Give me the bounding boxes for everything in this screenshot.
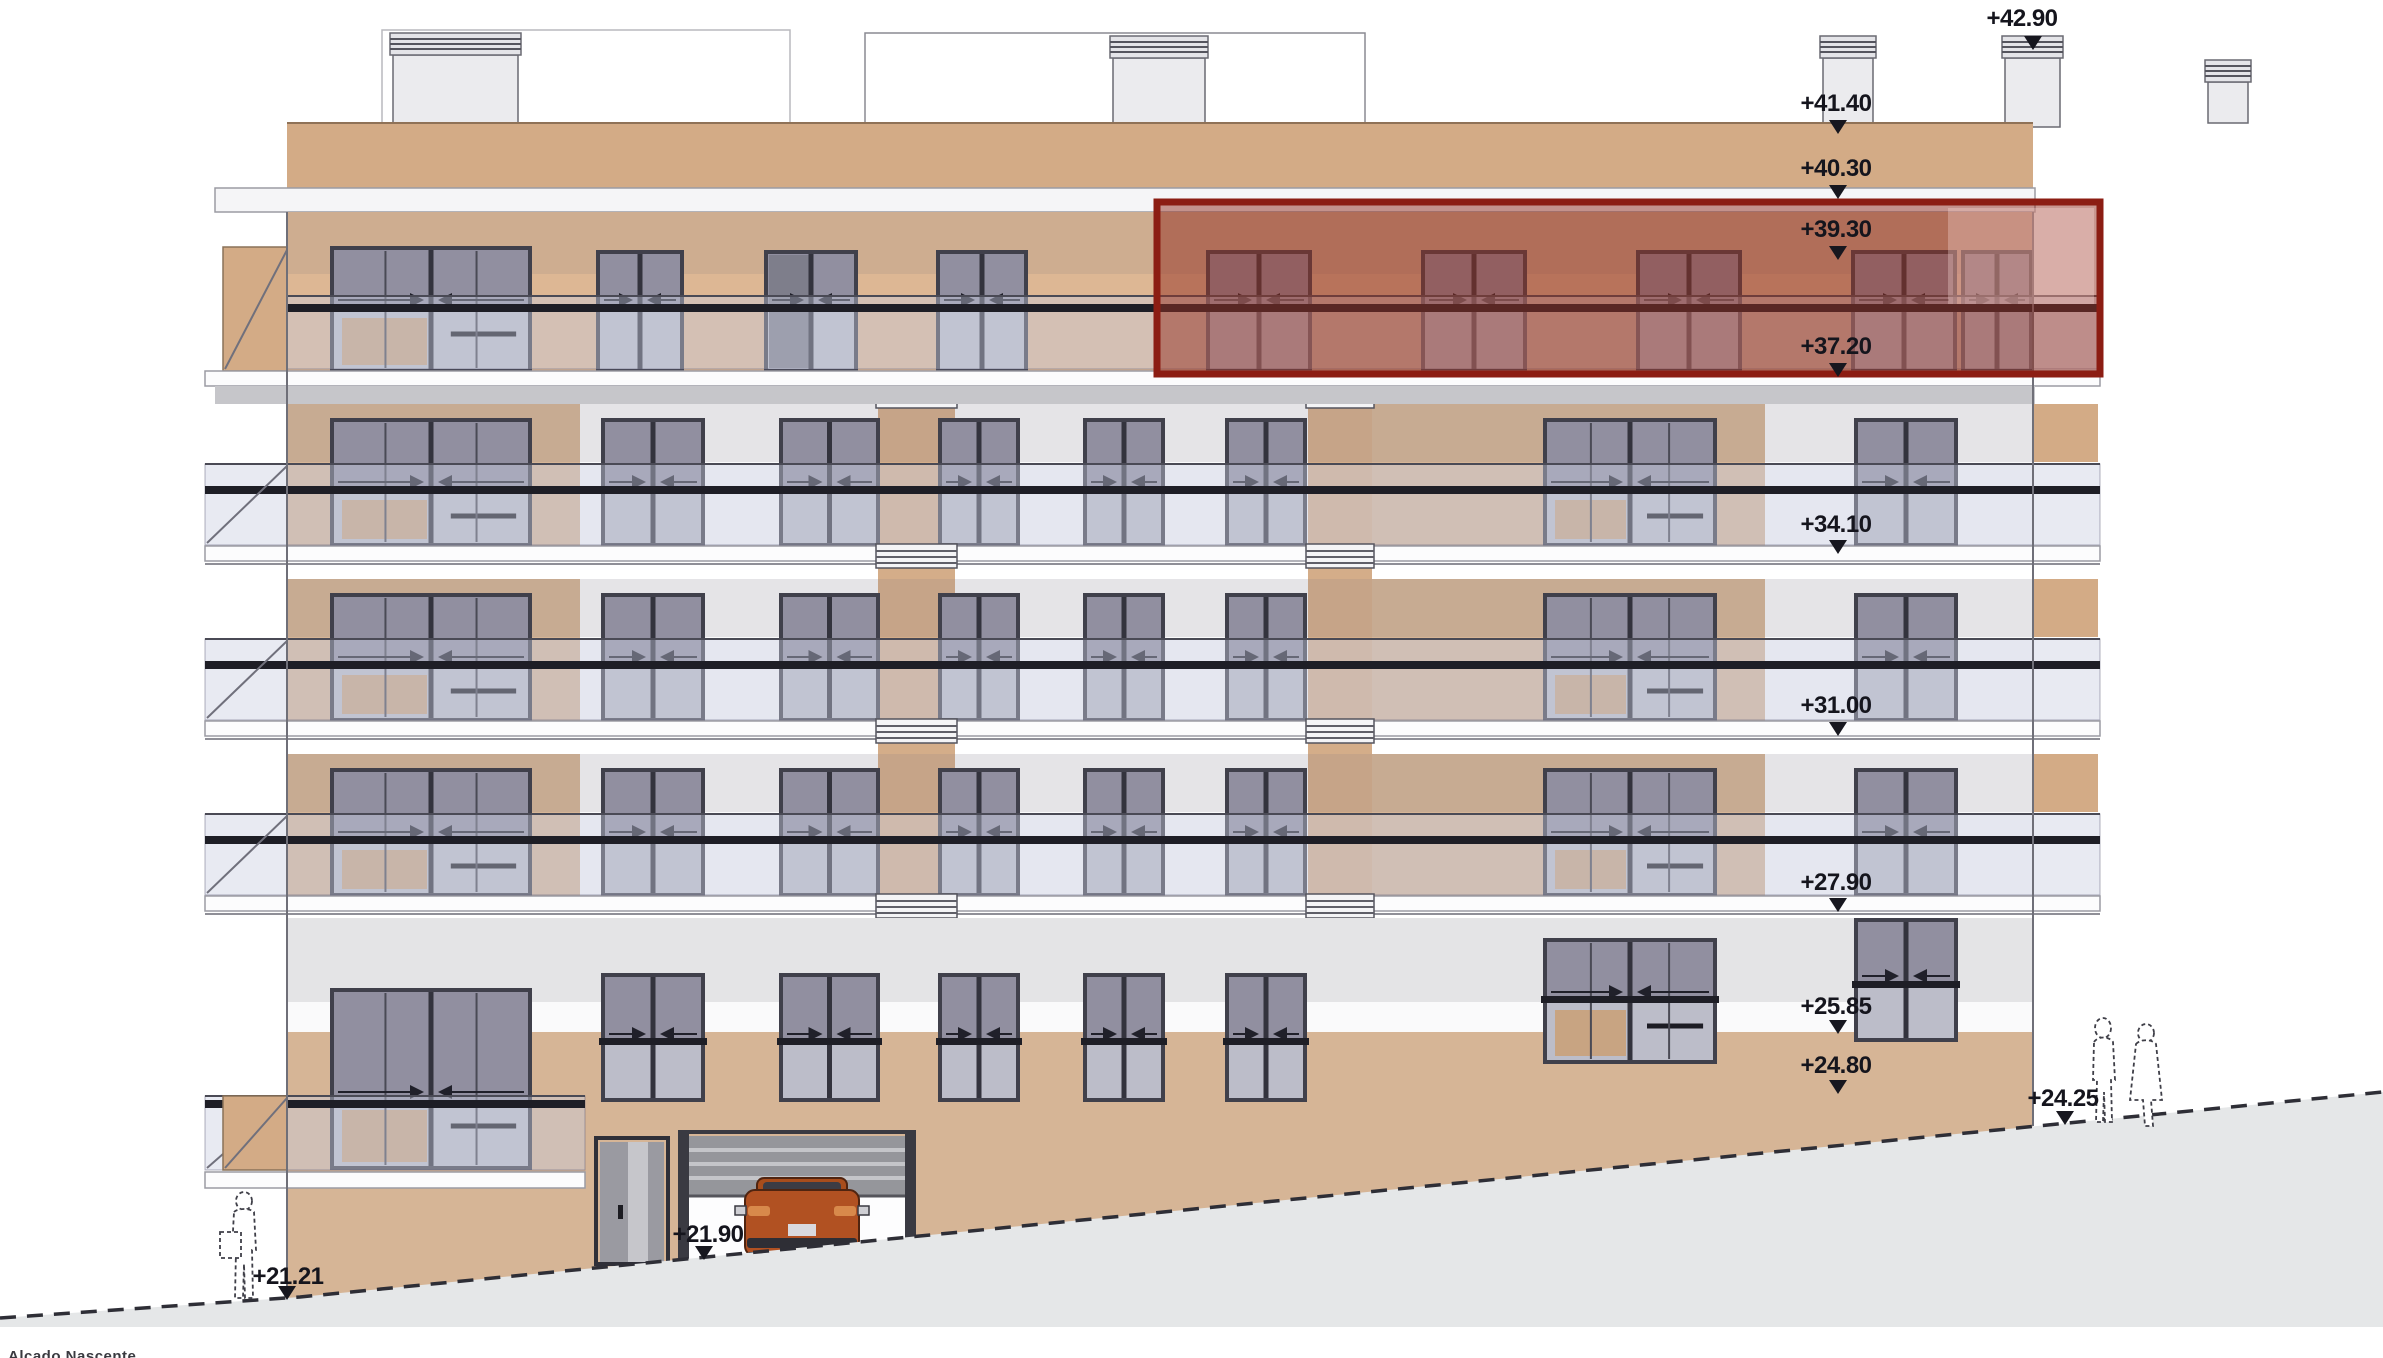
entrance-door — [596, 1138, 668, 1264]
door-panel-stripe — [628, 1142, 648, 1262]
window — [1085, 975, 1163, 1100]
elevation-drawing: +42.90+41.40+40.30+39.30+37.20+34.10+31.… — [0, 0, 2383, 1358]
highlighted-unit-overlay[interactable] — [1157, 202, 2100, 374]
person-head — [2138, 1024, 2154, 1042]
juliet-rail — [1223, 1038, 1309, 1045]
window — [781, 975, 878, 1100]
juliet-rail — [936, 1038, 1022, 1045]
pier-slab-band — [876, 894, 957, 918]
chimney — [2002, 36, 2063, 127]
ground-balcony-slab — [205, 1172, 585, 1188]
chimney-body — [2005, 58, 2060, 127]
juliet-rail — [599, 1038, 707, 1045]
highlight-glare — [1948, 208, 2094, 304]
elevation-marker-label: +40.30 — [1800, 155, 1871, 182]
juliet-rail — [1541, 996, 1719, 1003]
window — [1856, 920, 1956, 1040]
drawing-title: Alçado Nascente — [8, 1348, 136, 1358]
juliet-rail — [1852, 981, 1960, 988]
pier-slab-band — [1306, 544, 1374, 568]
window — [1227, 975, 1305, 1100]
juliet-rail — [1081, 1038, 1167, 1045]
floor-slab — [205, 721, 2100, 736]
pier-slab-band — [1306, 894, 1374, 918]
chimney-body — [2208, 82, 2248, 123]
railing-handrail — [205, 486, 2100, 494]
floor-slab — [205, 546, 2100, 561]
chimney — [1110, 36, 1208, 127]
chimney — [2205, 60, 2251, 123]
car-plate — [788, 1224, 816, 1236]
elevation-scene: +42.90+41.40+40.30+39.30+37.20+34.10+31.… — [0, 0, 2383, 1358]
elevation-marker: +24.25 — [2027, 1085, 2098, 1125]
slab-fascia — [215, 386, 2035, 404]
car-mirror — [735, 1206, 746, 1215]
chimney-body — [1113, 58, 1205, 127]
elevation-marker-label: +39.30 — [1800, 216, 1871, 243]
floor-slab — [205, 896, 2100, 911]
person-silhouette — [2130, 1024, 2162, 1126]
pier-slab-band — [1306, 719, 1374, 743]
elevation-marker-label: +24.80 — [1800, 1052, 1871, 1079]
person-box — [220, 1232, 241, 1258]
door-handle — [618, 1205, 623, 1219]
balcony-end-wall — [2033, 404, 2098, 462]
car-mirror — [858, 1206, 869, 1215]
chimney-body — [393, 55, 518, 123]
juliet-rail — [777, 1038, 882, 1045]
elevation-marker-label: +31.00 — [1800, 692, 1871, 719]
elevation-marker-label: +27.90 — [1800, 869, 1871, 896]
person-silhouette — [220, 1192, 256, 1298]
person-head — [236, 1192, 252, 1210]
elevation-marker-label: +21.21 — [252, 1263, 323, 1290]
elevation-marker-label: +21.90 — [672, 1221, 743, 1248]
pier-slab-band — [876, 719, 957, 743]
attic-band — [287, 123, 2033, 188]
elevation-marker-label: +25.85 — [1800, 993, 1871, 1020]
car-taillight — [834, 1206, 856, 1216]
chimney — [390, 33, 521, 123]
elevation-marker-label: +42.90 — [1986, 5, 2057, 32]
window — [940, 975, 1018, 1100]
elevation-marker-label: +37.20 — [1800, 333, 1871, 360]
balcony-end-wall — [2033, 754, 2098, 812]
pier-slab-band — [876, 544, 957, 568]
car-taillight — [748, 1206, 770, 1216]
elevation-marker-label: +34.10 — [1800, 511, 1871, 538]
elevation-marker-label: +41.40 — [1800, 90, 1871, 117]
elevation-marker-label: +24.25 — [2027, 1085, 2098, 1112]
window — [603, 975, 703, 1100]
railing-handrail — [205, 661, 2100, 669]
balcony-end-wall — [2033, 579, 2098, 637]
railing-handrail — [205, 836, 2100, 844]
person-head — [2095, 1018, 2111, 1038]
